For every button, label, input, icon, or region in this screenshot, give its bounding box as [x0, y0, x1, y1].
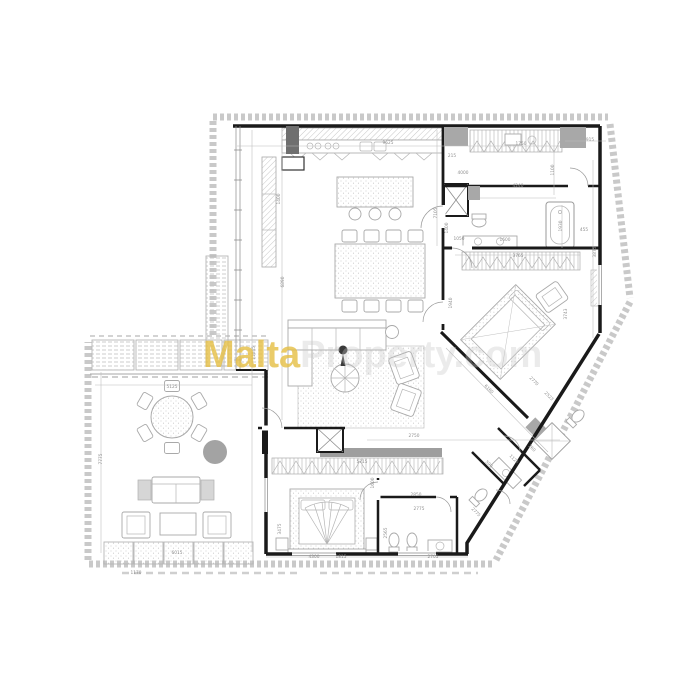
- master-bedroom: [276, 489, 377, 554]
- cabinet-door-marks: [290, 153, 432, 160]
- kitchen-island: [337, 177, 413, 220]
- master-bed: [288, 489, 366, 554]
- dimension-label: 2705: [428, 554, 439, 560]
- dimension-label: 9625: [383, 140, 394, 146]
- kitchen: [262, 128, 443, 312]
- nightstand-right: [366, 538, 377, 550]
- nightstand-left: [276, 538, 288, 550]
- dimension-label: 4240: [513, 183, 524, 189]
- dimension-label: 1930: [558, 220, 564, 231]
- toilet-3: [566, 408, 587, 429]
- dimension-label: 2775: [470, 506, 482, 518]
- dimension-label: 1100: [550, 164, 556, 175]
- terrace-round-table: [136, 381, 207, 454]
- toilet: [389, 533, 399, 552]
- dimension-label: 2750: [409, 433, 420, 439]
- dimension-label: 455: [580, 227, 588, 233]
- dimension-label: 1400: [444, 222, 450, 233]
- dimension-label: 4300: [309, 554, 320, 560]
- master-bathroom: [389, 533, 452, 552]
- dimension-label: 6015: [172, 550, 183, 556]
- terrace-armchair-right: [203, 512, 231, 538]
- dining-table: [335, 230, 425, 312]
- dimension-label: 1400: [276, 193, 282, 204]
- dimension-label: 2523: [543, 390, 555, 402]
- elevator-shaft: [317, 428, 343, 452]
- svg-text:MaltaProperty.com: MaltaProperty.com: [203, 334, 542, 376]
- bath-vanity: [428, 540, 452, 552]
- terrace-plant: [203, 440, 227, 464]
- dimension-label: 5715: [357, 459, 368, 465]
- dimension-label: 3743: [563, 308, 569, 319]
- kitchen-tall-units: [262, 157, 276, 267]
- dimension-label: 7775: [98, 453, 104, 464]
- terrace: [90, 256, 268, 564]
- dimension-label: 915: [586, 137, 594, 143]
- watermark-brand: Malta: [203, 334, 301, 376]
- toilet-4: [469, 487, 490, 508]
- watermark-domain: Property.com: [300, 334, 542, 376]
- floor-plan-page: 9625 215 1750 915 1100 4000 4240 1400 19…: [0, 0, 700, 700]
- dimension-label: 1750: [516, 141, 527, 147]
- terrace-coffee-table: [160, 513, 196, 535]
- terrace-armchair-left: [122, 512, 150, 538]
- dimension-label: 1815: [336, 554, 347, 560]
- dimension-label: 2770: [528, 375, 540, 387]
- dimension-label: 3875: [592, 246, 598, 257]
- floor-plan-canvas: 9625 215 1750 915 1100 4000 4240 1400 19…: [0, 0, 700, 700]
- dimension-label: 215: [448, 153, 456, 159]
- dimension-label: 1940: [448, 297, 454, 308]
- dimension-label: 1600: [500, 237, 511, 243]
- toilet-2: [472, 214, 486, 227]
- dimension-label: 2775: [414, 506, 425, 512]
- dimension-label: 2565: [383, 527, 389, 538]
- dimension-label: 1170: [131, 570, 142, 576]
- dimension-label: 3765: [513, 253, 524, 259]
- dimension-label: 4000: [458, 170, 469, 176]
- dimension-label: 260: [527, 443, 537, 453]
- dimension-label: 3475: [277, 523, 283, 534]
- watermark: MaltaProperty.com: [203, 334, 542, 376]
- dimension-label: 7105: [433, 207, 439, 218]
- dimension-label: 1600: [370, 477, 376, 488]
- dimension-label: 1050: [454, 236, 465, 242]
- service-shaft: [444, 184, 468, 216]
- kitchen-wall-units: [282, 128, 443, 140]
- dimension-label: 6890: [280, 276, 286, 287]
- bidet: [407, 533, 417, 552]
- terrace-sofa: [138, 477, 214, 503]
- dimension-label: 5125: [167, 384, 178, 390]
- dimension-label: 2850: [411, 492, 422, 498]
- radiator: [591, 270, 598, 306]
